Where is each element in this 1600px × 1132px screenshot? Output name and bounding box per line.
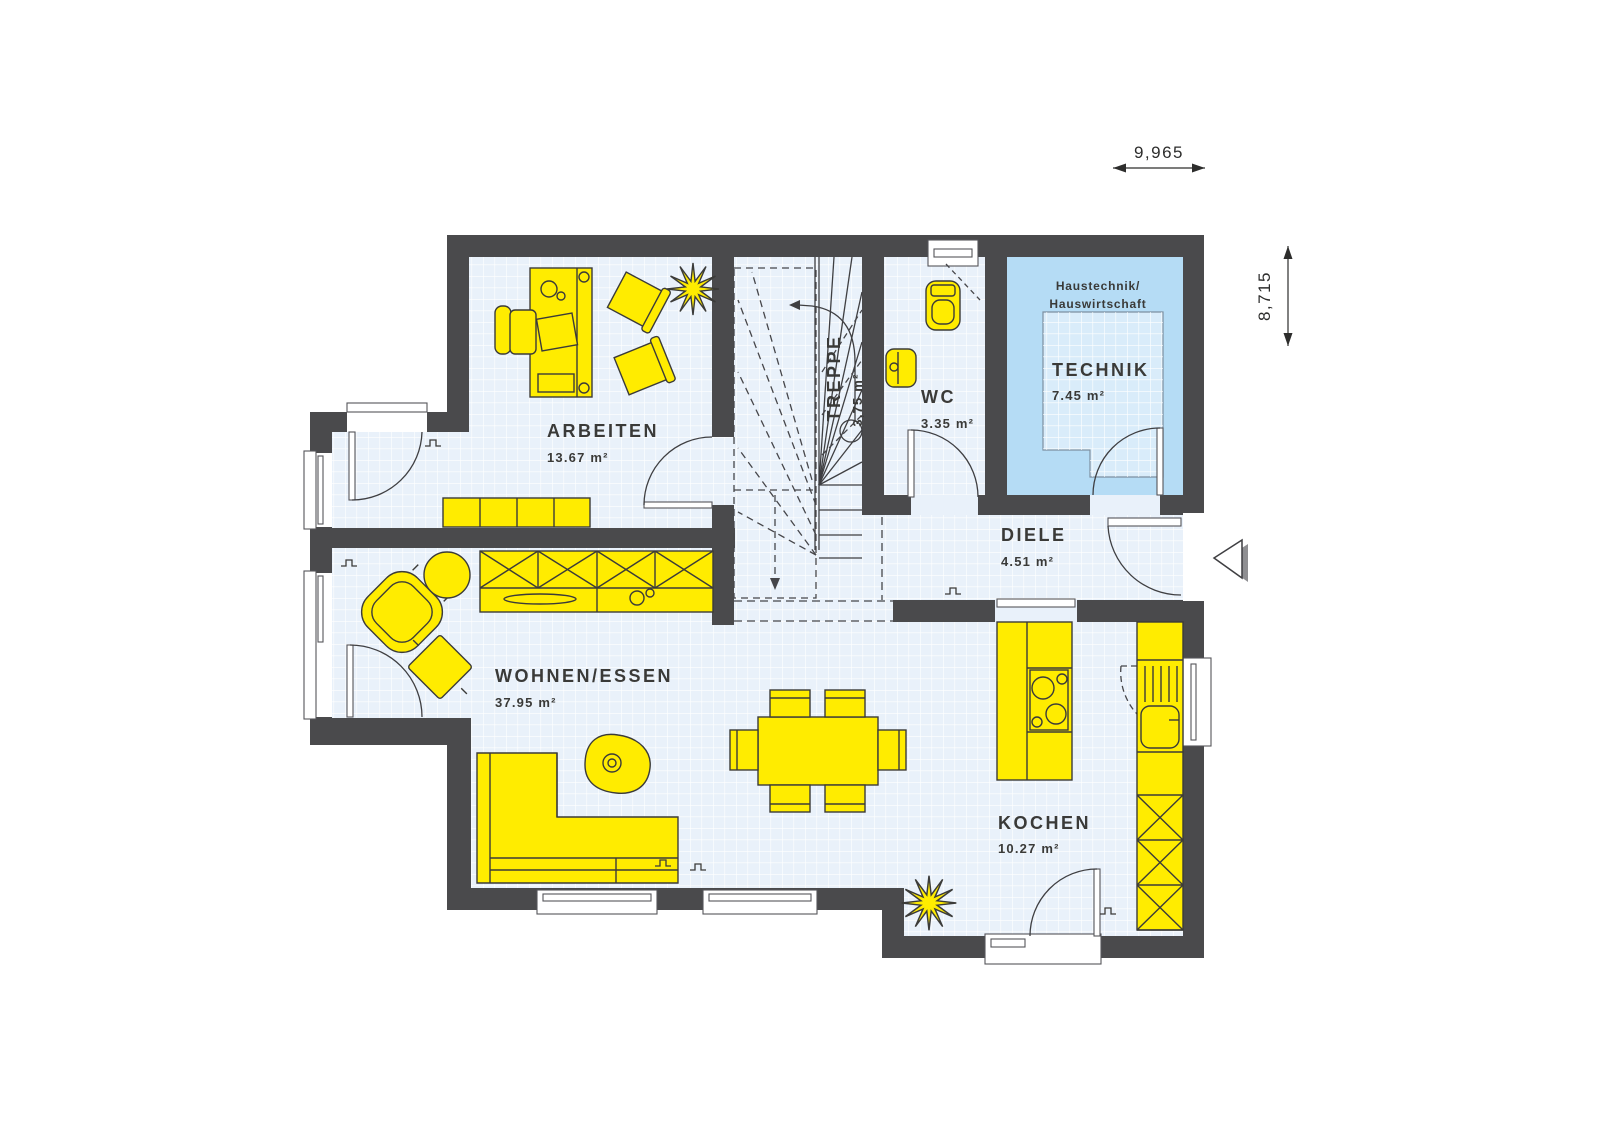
entrance-opening	[1183, 513, 1204, 601]
wohnen-door-leaf	[347, 645, 353, 717]
wohnen-bottom-window-b	[703, 890, 817, 914]
dimension-width-label: 9,965	[1134, 143, 1184, 162]
kitchen-counter	[1137, 622, 1183, 930]
technik-door-opening	[1090, 495, 1160, 515]
toilet	[926, 281, 960, 330]
side-table	[424, 552, 470, 598]
dimension-width: 9,965	[1113, 143, 1205, 173]
dimension-height: 8,715	[1255, 246, 1293, 346]
entrance-arrow-icon	[1214, 540, 1248, 582]
office-chair	[495, 306, 536, 354]
wc-window	[928, 240, 978, 266]
kochen-window	[1183, 658, 1211, 746]
room-label-wc: WC	[921, 387, 956, 407]
kitchen-island	[997, 622, 1072, 780]
room-area-kochen: 10.27 m²	[998, 841, 1060, 856]
dining-chair	[770, 690, 810, 717]
dining-chair	[825, 785, 865, 812]
room-area-wc: 3.35 m²	[921, 416, 974, 431]
wohnen-bottom-window-a	[537, 890, 657, 914]
floor-plan-page: 9,965 8,715 ARBEITEN 13.67 m² WOHNEN/ESS…	[0, 0, 1600, 1132]
washbasin	[886, 349, 916, 387]
room-label-kochen: KOCHEN	[998, 813, 1091, 833]
arbeiten-terrace-door-leaf	[349, 432, 355, 500]
dining-chair	[730, 730, 758, 770]
room-label-technik: TECHNIK	[1052, 360, 1150, 380]
shelf-unit	[480, 551, 713, 612]
dimension-height-label: 8,715	[1255, 271, 1274, 321]
dining-chair	[770, 785, 810, 812]
cooktop	[1030, 670, 1068, 730]
room-label-diele: DIELE	[1001, 525, 1067, 545]
technik-note-line2: Hauswirtschaft	[1049, 297, 1146, 311]
room-label-arbeiten: ARBEITEN	[547, 421, 659, 441]
room-area-arbeiten: 13.67 m²	[547, 450, 609, 465]
room-area-wohnen: 37.95 m²	[495, 695, 557, 710]
wc-door-opening	[911, 495, 978, 515]
room-area-treppe: 3,75 m²	[850, 373, 865, 426]
floor-plan: 9,965 8,715 ARBEITEN 13.67 m² WOHNEN/ESS…	[0, 0, 1600, 1132]
sideboard	[443, 498, 590, 527]
diele-passage-frame	[997, 599, 1075, 607]
arbeiten-window	[304, 451, 332, 529]
kitchen-sink	[1141, 706, 1179, 748]
room-area-diele: 4.51 m²	[1001, 554, 1054, 569]
dining-chair	[825, 690, 865, 717]
dining-chair	[878, 730, 906, 770]
room-label-treppe: TREPPE	[824, 334, 844, 421]
desk	[530, 268, 592, 397]
technik-note-line1: Haustechnik/	[1056, 279, 1140, 293]
dining-table	[758, 717, 878, 785]
room-area-technik: 7.45 m²	[1052, 388, 1105, 403]
kochen-door-leaf	[1094, 869, 1100, 936]
room-label-wohnen: WOHNEN/ESSEN	[495, 666, 673, 686]
